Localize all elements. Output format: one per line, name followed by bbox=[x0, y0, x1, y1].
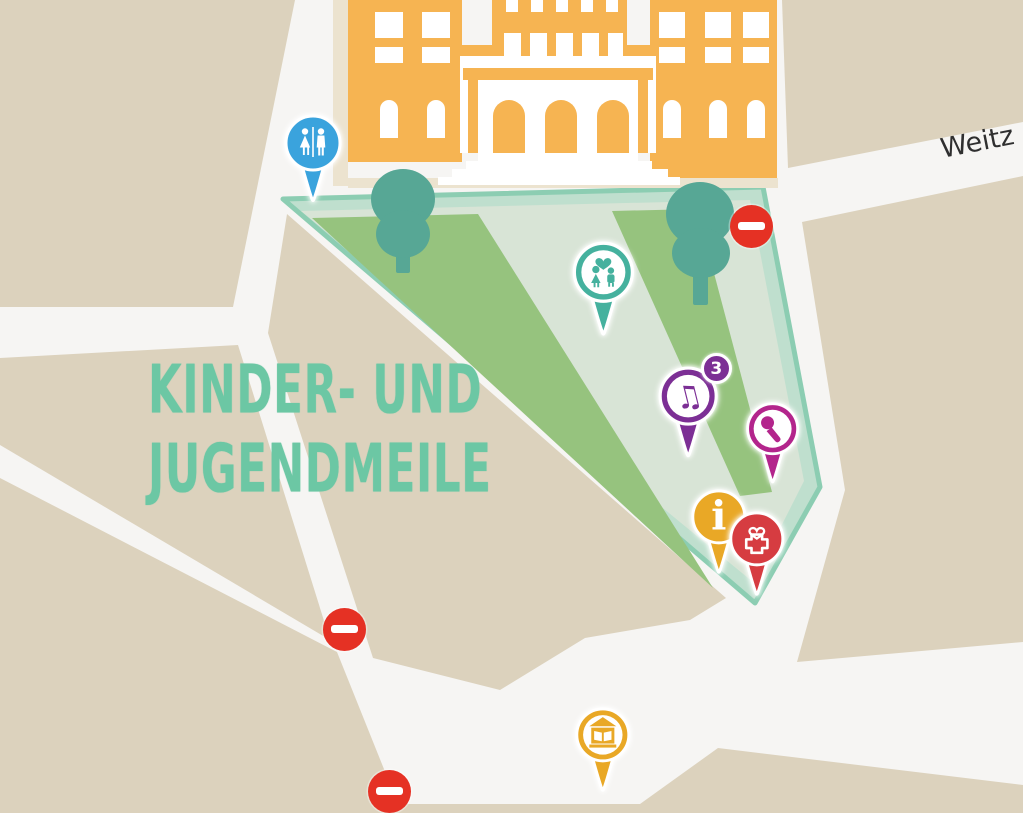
map-pin-toilets[interactable] bbox=[281, 113, 345, 205]
no-entry-bar bbox=[376, 787, 403, 795]
no-entry-bar bbox=[738, 222, 765, 230]
no-entry-sign bbox=[730, 205, 773, 248]
area-label-line2: JUGENDMEILE bbox=[148, 431, 492, 510]
no-entry-sign bbox=[323, 608, 366, 651]
event-map: KINDER- UND JUGENDMEILE Weitz ♫3 i bbox=[0, 0, 1023, 804]
map-pin-kids-house[interactable] bbox=[572, 706, 634, 795]
area-label: KINDER- UND JUGENDMEILE bbox=[148, 352, 492, 509]
portico bbox=[460, 56, 656, 153]
no-entry-bar bbox=[331, 625, 358, 633]
area-label-line1: KINDER- UND bbox=[148, 352, 492, 431]
map-pin-family-area[interactable] bbox=[569, 240, 638, 339]
map-pin-first-aid[interactable] bbox=[726, 510, 788, 599]
no-entry-sign bbox=[368, 770, 411, 813]
map-pin-karaoke[interactable] bbox=[743, 401, 802, 486]
pin-count-badge: 3 bbox=[701, 353, 732, 384]
palace-building bbox=[348, 0, 777, 185]
svg-text:i: i bbox=[711, 492, 726, 540]
info-icon: i bbox=[711, 492, 726, 540]
